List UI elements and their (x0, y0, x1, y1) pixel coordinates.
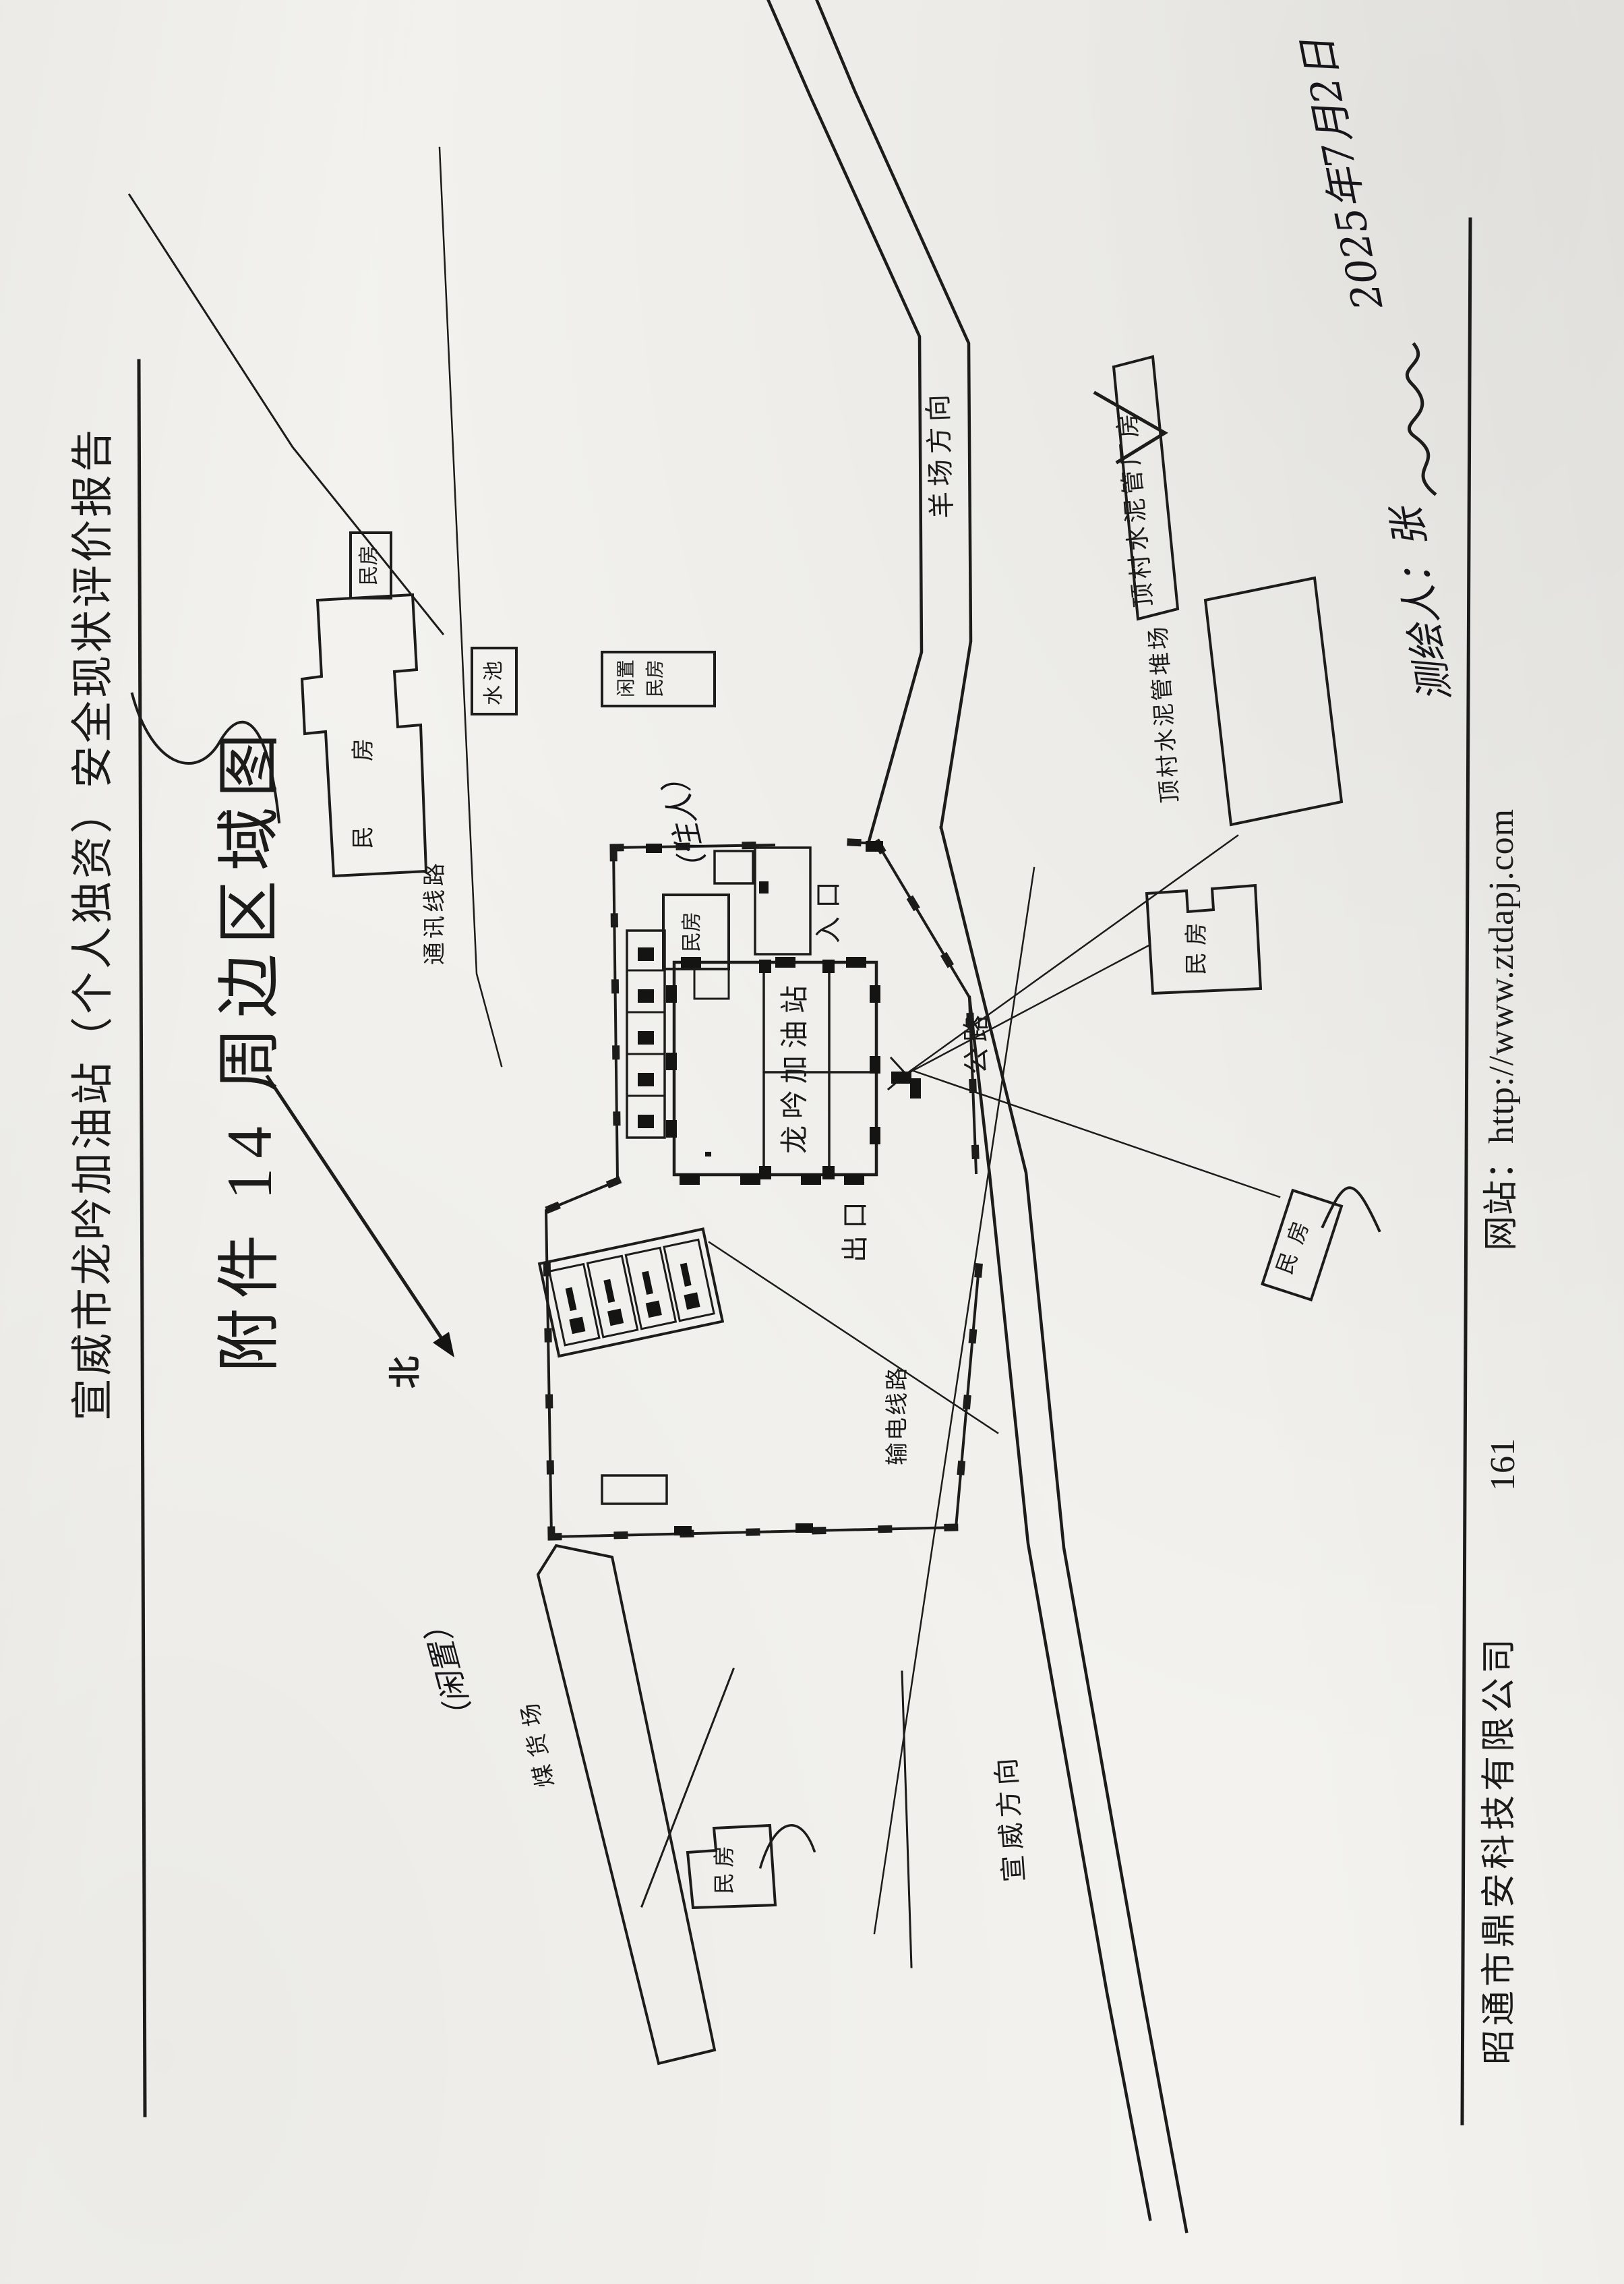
north-label: 北 (387, 1356, 424, 1388)
exit-label: 出口 (840, 1195, 871, 1262)
website-label: 网站： (1482, 1144, 1521, 1251)
website-url: http://www.ztdapj.com (1482, 809, 1521, 1144)
fence-north (546, 848, 618, 1537)
house-label-boundary: 民房 (681, 895, 704, 969)
house-label-east: 民房 (1184, 891, 1210, 999)
fence-ticks (546, 842, 979, 1537)
power-line-label: 输电线路 (884, 1366, 911, 1465)
station-building (674, 962, 876, 1175)
footer-rule (1462, 219, 1470, 2124)
website: 网站：http://www.ztdapj.com (1482, 809, 1522, 1251)
house-label-southwest: 民房 (712, 1825, 737, 1909)
idle-house-label: 闲置民房 (612, 653, 671, 704)
page-number: 161 (1483, 1438, 1524, 1491)
north-arrow-head (433, 1332, 454, 1357)
small-shed (602, 1475, 667, 1504)
landscape-canvas: 宣威市龙吟加油站（个人独资）安全现状评价报告 附件 14 周边区域图 北 民房 … (0, 0, 1624, 2284)
station-name-label: 龙吟加油站 (779, 978, 812, 1154)
road-west-upper (969, 997, 1150, 2219)
arc-curve-sw (760, 1825, 814, 1867)
gate-house (755, 848, 810, 954)
small-annex (715, 851, 753, 883)
scanned-report-page: 宣威市龙吟加油站（个人独资）安全现状评价报告 附件 14 周边区域图 北 民房 … (0, 0, 1624, 2284)
entrance-label: 入口 (813, 873, 844, 943)
house-label-nw1: 民房 (358, 533, 382, 598)
signature-squiggle (1407, 345, 1435, 494)
coal-yard-outline (538, 1546, 715, 2063)
header-rule (139, 361, 145, 2115)
telecom-line-label: 通讯线路 (422, 860, 448, 965)
chevron-curve-se (1323, 1188, 1379, 1231)
ink-marks (433, 841, 921, 1535)
highway-label: 公路 (961, 1009, 992, 1074)
report-header: 宣威市龙吟加油站（个人独资）安全现状评价报告 (69, 427, 117, 1421)
road-east-upper (769, 1, 922, 844)
cement-stockyard-outline (1205, 578, 1342, 825)
telecom-line (440, 148, 502, 1066)
attachment-title: 附件 14 周边区域图 (213, 724, 287, 1372)
water-pool-label: 水池 (483, 648, 506, 714)
company-name: 昭通市鼎安科技有限公司 (1480, 1635, 1520, 2065)
field-line (129, 195, 443, 634)
direction-label-yangchang: 羊场方向 (923, 388, 959, 519)
house-label-nw2: 民房 (351, 674, 377, 849)
house-boundary-annex (694, 969, 729, 999)
north-arrow-shaft (268, 1077, 446, 1345)
